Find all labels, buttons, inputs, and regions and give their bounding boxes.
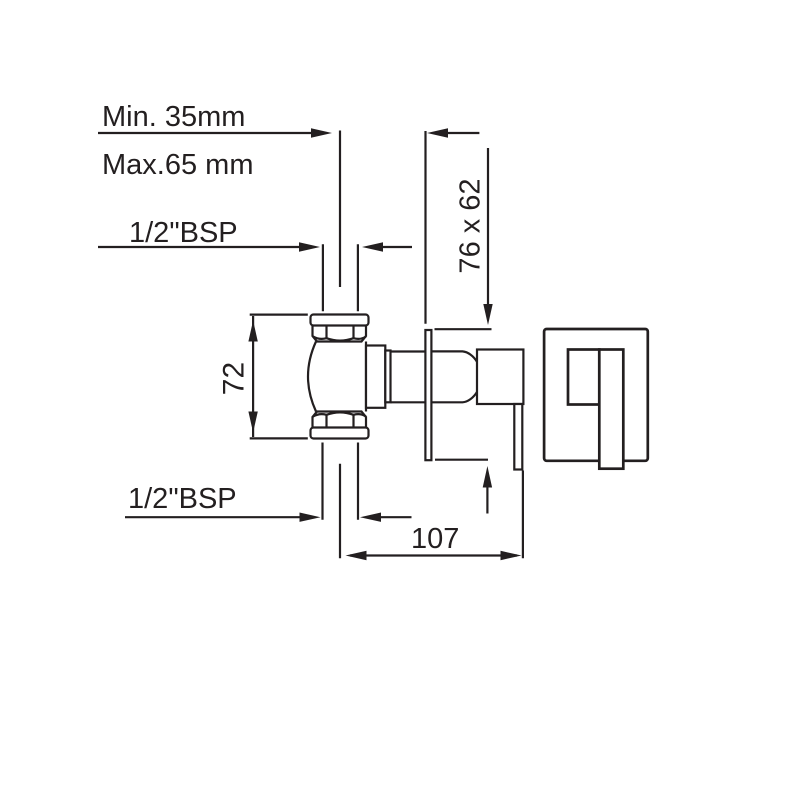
svg-text:72: 72 <box>218 362 251 395</box>
svg-text:1/2"BSP: 1/2"BSP <box>128 483 237 515</box>
svg-text:107: 107 <box>411 523 459 555</box>
svg-text:Max.65 mm: Max.65 mm <box>102 149 253 181</box>
svg-text:76 x 62: 76 x 62 <box>455 178 487 273</box>
svg-text:1/2"BSP: 1/2"BSP <box>129 217 238 249</box>
svg-text:Min. 35mm: Min. 35mm <box>102 101 245 133</box>
